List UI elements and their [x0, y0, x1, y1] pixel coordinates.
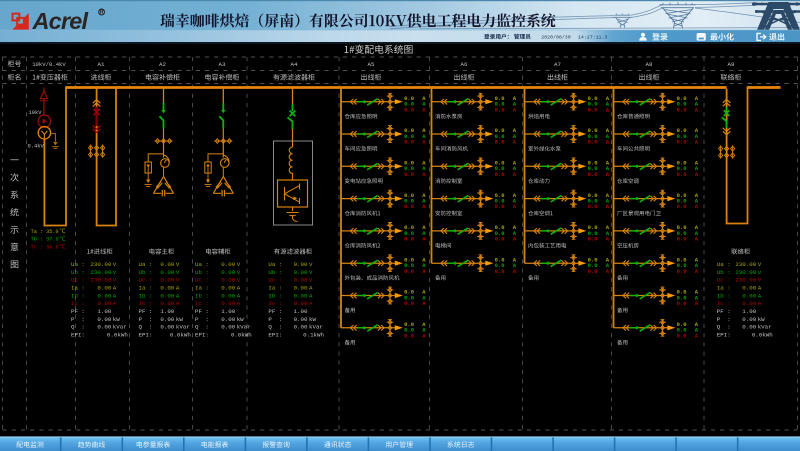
svg-text:A: A	[309, 300, 313, 307]
svg-text:0.0: 0.0	[404, 236, 414, 243]
svg-text:PF :: PF :	[717, 308, 731, 315]
svg-text:Ta : 35.0: Ta : 35.0	[31, 229, 59, 235]
svg-text:0.00: 0.00	[294, 284, 308, 291]
svg-text:A1: A1	[98, 61, 105, 68]
svg-text:V: V	[309, 261, 313, 268]
svg-text:0.0: 0.0	[588, 106, 598, 113]
svg-text:Ic :: Ic :	[268, 300, 282, 307]
svg-text:0.0: 0.0	[495, 171, 505, 178]
svg-text:Q :: Q :	[195, 324, 209, 331]
svg-text:kW: kW	[309, 316, 316, 323]
svg-text:0.0: 0.0	[588, 139, 598, 146]
svg-text:A: A	[176, 284, 180, 291]
svg-text:Ub :: Ub :	[71, 269, 85, 276]
svg-text:V: V	[237, 269, 241, 276]
svg-text:Acrel: Acrel	[32, 8, 89, 34]
svg-text:0.0: 0.0	[588, 203, 598, 210]
svg-text:EPI:: EPI:	[717, 332, 731, 339]
svg-text:0.00: 0.00	[221, 292, 235, 299]
svg-text:A9: A9	[728, 61, 735, 68]
svg-text:A: A	[237, 292, 241, 299]
svg-text:0.0: 0.0	[404, 332, 414, 339]
svg-text:A: A	[758, 292, 762, 299]
svg-text:0.00: 0.00	[221, 316, 235, 323]
svg-text:Ic :: Ic :	[139, 300, 153, 307]
svg-text:Ub :: Ub :	[195, 269, 209, 276]
svg-text:0.00: 0.00	[294, 269, 308, 276]
svg-text:10kV: 10kV	[29, 110, 43, 116]
svg-text:V: V	[309, 277, 313, 284]
svg-text:0.00: 0.00	[160, 277, 174, 284]
svg-text:0.0: 0.0	[495, 203, 505, 210]
svg-text:0.00: 0.00	[221, 277, 235, 284]
svg-text:Ic :: Ic :	[717, 300, 731, 307]
svg-text:P :: P :	[268, 316, 282, 323]
svg-text:0.00: 0.00	[160, 316, 174, 323]
svg-text:0.00: 0.00	[97, 284, 111, 291]
svg-text:V: V	[113, 269, 117, 276]
svg-text:kVar: kVar	[113, 324, 127, 331]
svg-text:0.00: 0.00	[160, 269, 174, 276]
svg-text:PF :: PF :	[195, 308, 209, 315]
svg-text:0.0: 0.0	[588, 268, 598, 275]
svg-text:0.0: 0.0	[404, 268, 414, 275]
svg-text:A: A	[758, 284, 762, 291]
svg-text:0.0: 0.0	[404, 203, 414, 210]
svg-text:0.00: 0.00	[160, 300, 174, 307]
svg-text:0.00: 0.00	[97, 316, 111, 323]
svg-text:1.00: 1.00	[97, 308, 111, 315]
svg-text:EPI:: EPI:	[139, 332, 153, 339]
svg-text:Uc :: Uc :	[195, 277, 209, 284]
svg-text:PF :: PF :	[268, 308, 282, 315]
svg-text:0.00: 0.00	[160, 292, 174, 299]
svg-text:0.0: 0.0	[677, 236, 687, 243]
svg-text:10kV/0.4kV: 10kV/0.4kV	[32, 61, 66, 68]
svg-text:0.0: 0.0	[677, 106, 687, 113]
svg-text:A: A	[237, 284, 241, 291]
svg-text:A: A	[309, 284, 313, 291]
svg-text:0.00: 0.00	[221, 269, 235, 276]
svg-text:0.00: 0.00	[294, 292, 308, 299]
svg-text:Uc :: Uc :	[268, 277, 282, 284]
svg-text:V: V	[113, 261, 117, 268]
svg-text:0.0: 0.0	[677, 171, 687, 178]
svg-text:P :: P :	[717, 316, 731, 323]
svg-text:0.00: 0.00	[742, 316, 756, 323]
svg-text:A5: A5	[368, 61, 375, 68]
svg-text:EPI:: EPI:	[195, 332, 209, 339]
svg-text:kVar: kVar	[176, 324, 190, 331]
svg-text:Ua :: Ua :	[195, 261, 209, 268]
svg-text:0.00: 0.00	[742, 324, 756, 331]
svg-text:1.00: 1.00	[294, 308, 308, 315]
svg-text:V: V	[758, 269, 762, 276]
svg-text:kVar: kVar	[758, 324, 772, 331]
svg-text:A: A	[237, 300, 241, 307]
svg-text:0.0: 0.0	[495, 139, 505, 146]
svg-text:P :: P :	[139, 316, 153, 323]
svg-text:V: V	[176, 261, 180, 268]
svg-text:0.00: 0.00	[160, 284, 174, 291]
svg-text:0.0kWh: 0.0kWh	[752, 332, 773, 339]
svg-text:Ib :: Ib :	[268, 292, 282, 299]
svg-text:230.00: 230.00	[90, 261, 111, 268]
svg-text:V: V	[113, 277, 117, 284]
svg-text:Q :: Q :	[717, 324, 731, 331]
svg-text:P :: P :	[195, 316, 209, 323]
svg-text:0.00: 0.00	[294, 316, 308, 323]
svg-text:1.00: 1.00	[160, 308, 174, 315]
svg-text:V: V	[176, 269, 180, 276]
svg-text:Ub :: Ub :	[139, 269, 153, 276]
svg-text:0.0: 0.0	[404, 300, 414, 307]
svg-text:R: R	[99, 9, 104, 16]
svg-text:0.0: 0.0	[677, 203, 687, 210]
svg-text:0.0kWh: 0.0kWh	[231, 332, 252, 339]
svg-text:0.00: 0.00	[160, 324, 174, 331]
svg-text:A3: A3	[219, 61, 226, 68]
svg-text:0.00: 0.00	[294, 324, 308, 331]
svg-text:A: A	[113, 300, 117, 307]
svg-text:A: A	[758, 300, 762, 307]
svg-text:0.1kWh: 0.1kWh	[303, 332, 324, 339]
svg-text:Ua :: Ua :	[717, 261, 731, 268]
svg-text:P :: P :	[71, 316, 85, 323]
svg-text:kVar: kVar	[237, 324, 251, 331]
svg-text:PF :: PF :	[139, 308, 153, 315]
svg-text:0.00: 0.00	[294, 261, 308, 268]
svg-text:kW: kW	[113, 316, 120, 323]
svg-text:Ia :: Ia :	[195, 284, 209, 291]
svg-text:2020/08/30: 2020/08/30	[541, 35, 570, 41]
svg-text:V: V	[309, 269, 313, 276]
svg-text:kVar: kVar	[309, 324, 323, 331]
svg-text:230.00: 230.00	[735, 269, 756, 276]
svg-text:14:27:11.3: 14:27:11.3	[578, 35, 607, 41]
svg-text:0.0kWh: 0.0kWh	[170, 332, 191, 339]
svg-text:Q :: Q :	[139, 324, 153, 331]
svg-text:0.0: 0.0	[588, 171, 598, 178]
svg-text:PF :: PF :	[71, 308, 85, 315]
svg-text:0.0: 0.0	[495, 268, 505, 275]
svg-text:0.0: 0.0	[677, 139, 687, 146]
svg-text:0.0: 0.0	[495, 106, 505, 113]
svg-text:A: A	[309, 292, 313, 299]
svg-text:Ub :: Ub :	[268, 269, 282, 276]
svg-text:Uc :: Uc :	[139, 277, 153, 284]
svg-text:0.00: 0.00	[221, 261, 235, 268]
svg-text:Uc :: Uc :	[71, 277, 85, 284]
svg-text:V: V	[237, 277, 241, 284]
svg-text:A2: A2	[159, 61, 166, 68]
svg-text:0.00: 0.00	[221, 284, 235, 291]
svg-text:EPI:: EPI:	[268, 332, 282, 339]
svg-text:Ua :: Ua :	[71, 261, 85, 268]
svg-text:Uc :: Uc :	[717, 277, 731, 284]
svg-text:A: A	[176, 300, 180, 307]
svg-text:Ib :: Ib :	[195, 292, 209, 299]
svg-text:A8: A8	[646, 61, 653, 68]
svg-text:V: V	[758, 277, 762, 284]
svg-text:Ia :: Ia :	[268, 284, 282, 291]
svg-text:Ib :: Ib :	[717, 292, 731, 299]
svg-text:0.0: 0.0	[588, 236, 598, 243]
svg-text:Tc : 36.0: Tc : 36.0	[31, 244, 59, 250]
svg-text:0.0: 0.0	[677, 268, 687, 275]
svg-text:0.00: 0.00	[221, 300, 235, 307]
svg-text:0.0: 0.0	[404, 106, 414, 113]
svg-text:Q :: Q :	[71, 324, 85, 331]
svg-text:V: V	[237, 261, 241, 268]
svg-text:kW: kW	[758, 316, 765, 323]
svg-text:Ic :: Ic :	[195, 300, 209, 307]
svg-text:230.00: 230.00	[90, 277, 111, 284]
svg-text:0.00: 0.00	[97, 292, 111, 299]
svg-text:0.00: 0.00	[294, 277, 308, 284]
svg-text:230.00: 230.00	[735, 277, 756, 284]
svg-text:Ia :: Ia :	[139, 284, 153, 291]
svg-text:Q :: Q :	[268, 324, 282, 331]
svg-text:0.00: 0.00	[294, 300, 308, 307]
svg-text:A7: A7	[554, 61, 561, 68]
svg-text:V: V	[758, 261, 762, 268]
svg-text:0.00: 0.00	[742, 300, 756, 307]
svg-text:A4: A4	[291, 61, 298, 68]
svg-text:0.0: 0.0	[677, 300, 687, 307]
svg-text:0.0: 0.0	[495, 236, 505, 243]
svg-text:Ia :: Ia :	[717, 284, 731, 291]
svg-text:0.0: 0.0	[404, 171, 414, 178]
svg-text:0.00: 0.00	[221, 324, 235, 331]
svg-text:1.00: 1.00	[221, 308, 235, 315]
svg-text:Ia :: Ia :	[71, 284, 85, 291]
svg-text:1.00: 1.00	[742, 308, 756, 315]
svg-text:A: A	[113, 284, 117, 291]
svg-text:Ub :: Ub :	[717, 269, 731, 276]
svg-text:0.00: 0.00	[742, 292, 756, 299]
svg-text:230.00: 230.00	[90, 269, 111, 276]
svg-text:0.00: 0.00	[742, 284, 756, 291]
svg-text:Tb : 37.0: Tb : 37.0	[31, 237, 59, 243]
svg-text:230.00: 230.00	[735, 261, 756, 268]
svg-text:V: V	[176, 277, 180, 284]
svg-text:0.0: 0.0	[404, 139, 414, 146]
svg-text:kW: kW	[176, 316, 183, 323]
svg-text:A: A	[113, 292, 117, 299]
svg-text:0.4kV: 0.4kV	[28, 144, 45, 150]
svg-text:Ib :: Ib :	[139, 292, 153, 299]
svg-text:0.00: 0.00	[97, 300, 111, 307]
svg-text:0.0: 0.0	[677, 332, 687, 339]
svg-text:0.0kWh: 0.0kWh	[107, 332, 128, 339]
svg-text:Ua :: Ua :	[139, 261, 153, 268]
svg-text:Ua :: Ua :	[268, 261, 282, 268]
svg-text:0.00: 0.00	[160, 261, 174, 268]
svg-text:Ic :: Ic :	[71, 300, 85, 307]
svg-text:A: A	[176, 292, 180, 299]
svg-text:Ib :: Ib :	[71, 292, 85, 299]
svg-text:kW: kW	[237, 316, 244, 323]
svg-text:0.00: 0.00	[97, 324, 111, 331]
svg-text:EPI:: EPI:	[71, 332, 85, 339]
svg-text:A6: A6	[461, 61, 468, 68]
